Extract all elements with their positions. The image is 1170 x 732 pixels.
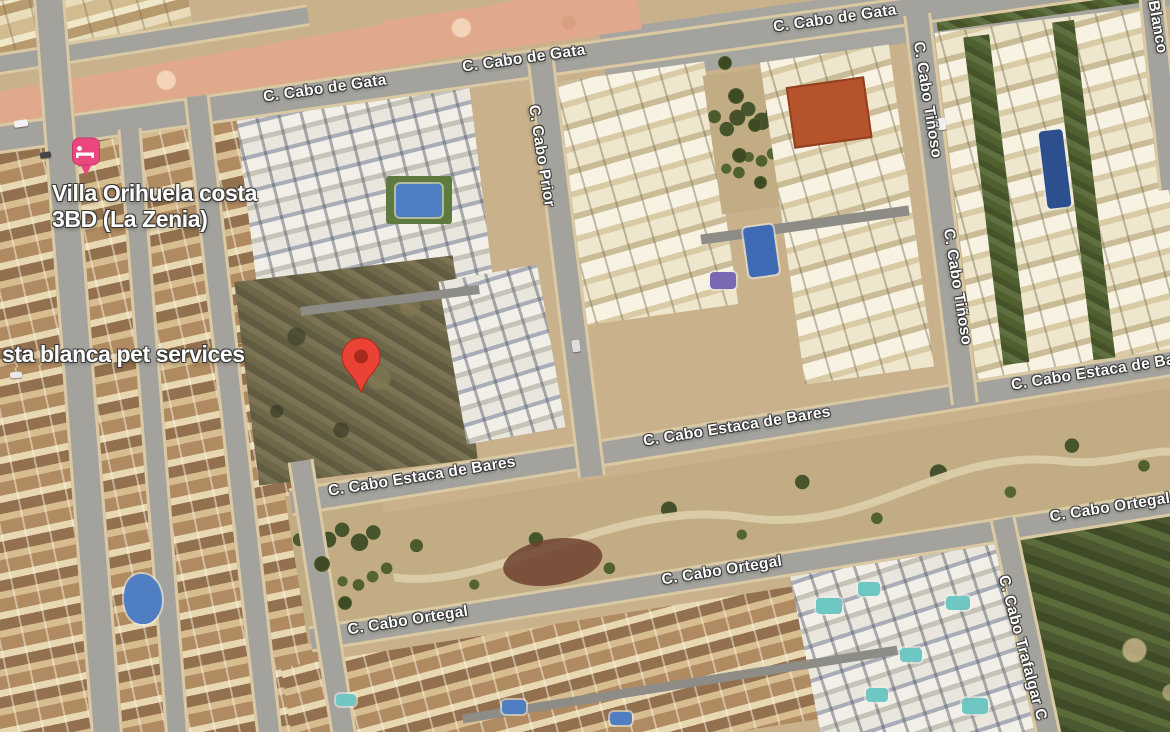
swimming-pool	[124, 574, 162, 624]
lodging-pin[interactable]	[71, 137, 101, 177]
tree-icon	[314, 556, 330, 572]
poi-label-villa-orihuela[interactable]: Villa Orihuela costa 3BD (La Zenia)	[52, 180, 257, 232]
tree-icon	[754, 176, 767, 189]
swimming-pool	[502, 700, 526, 714]
red-roof-building	[786, 76, 873, 148]
car	[10, 372, 22, 379]
car	[571, 340, 580, 353]
poi-label-line1: sta blanca pet services	[2, 341, 245, 367]
swimming-pool	[900, 648, 922, 662]
tree-icon	[728, 88, 744, 104]
destination-location-pin[interactable]	[341, 337, 381, 393]
tree-icon	[338, 596, 352, 610]
swimming-pool	[962, 698, 988, 714]
tree-icon	[718, 56, 732, 70]
swimming-pool	[710, 272, 736, 289]
garden-stripe	[963, 34, 1029, 365]
swimming-pool	[946, 596, 970, 610]
poi-label-line1: Villa Orihuela costa	[52, 180, 257, 206]
swimming-pool	[866, 688, 888, 702]
poi-label-line2: 3BD (La Zenia)	[52, 206, 257, 232]
swimming-pool	[336, 694, 356, 706]
poi-label-pet-services[interactable]: sta blanca pet services	[2, 341, 245, 367]
swimming-pool	[610, 712, 632, 725]
satellite-map[interactable]: C. Cabo de Gata C. Cabo de Gata C. Cabo …	[0, 0, 1170, 732]
tree-icon	[748, 118, 762, 132]
tree-icon	[732, 148, 747, 163]
swimming-pool	[816, 598, 842, 614]
swimming-pool	[396, 184, 442, 217]
swimming-pool	[858, 582, 880, 596]
